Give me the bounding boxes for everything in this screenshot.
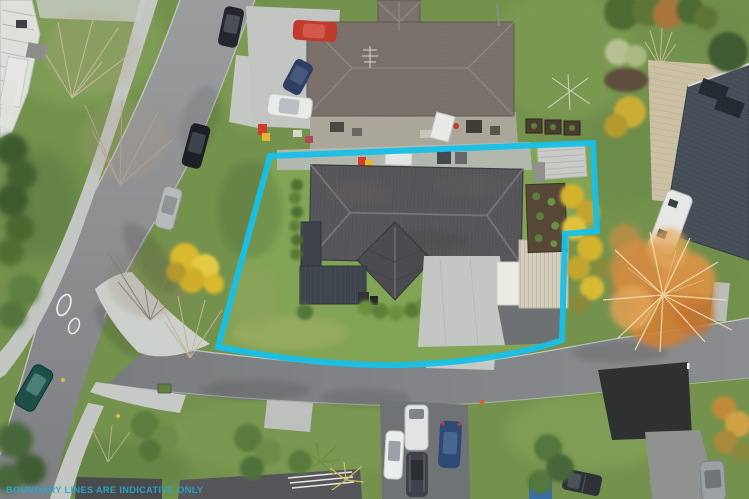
planter-boxes (526, 119, 580, 135)
utility-box (158, 384, 171, 393)
driveway-apron-1 (264, 400, 313, 432)
shed-annex (533, 162, 545, 182)
watermark-disclaimer: BOUNDARY LINES ARE INDICATIVE ONLY (6, 485, 204, 495)
greenhouse-vent (16, 20, 27, 28)
fresh-asphalt-driveway (598, 362, 692, 440)
white-van-south (405, 405, 428, 450)
subject-driveway (418, 256, 508, 347)
dark-car-south (406, 452, 428, 497)
aerial-photo: BOUNDARY LINES ARE INDICATIVE ONLY (0, 0, 749, 499)
roadside-marker-post (687, 363, 690, 369)
navy-car-south (438, 420, 462, 468)
red-car (292, 19, 337, 42)
grey-suv-south (700, 460, 727, 499)
garage-white-panel (497, 262, 519, 305)
road-marking-dot (61, 378, 65, 382)
white-sedan-south (384, 431, 404, 480)
orange-marker (480, 400, 485, 405)
dark-wing-narrow (301, 222, 321, 270)
road-marking-dot (116, 414, 120, 418)
